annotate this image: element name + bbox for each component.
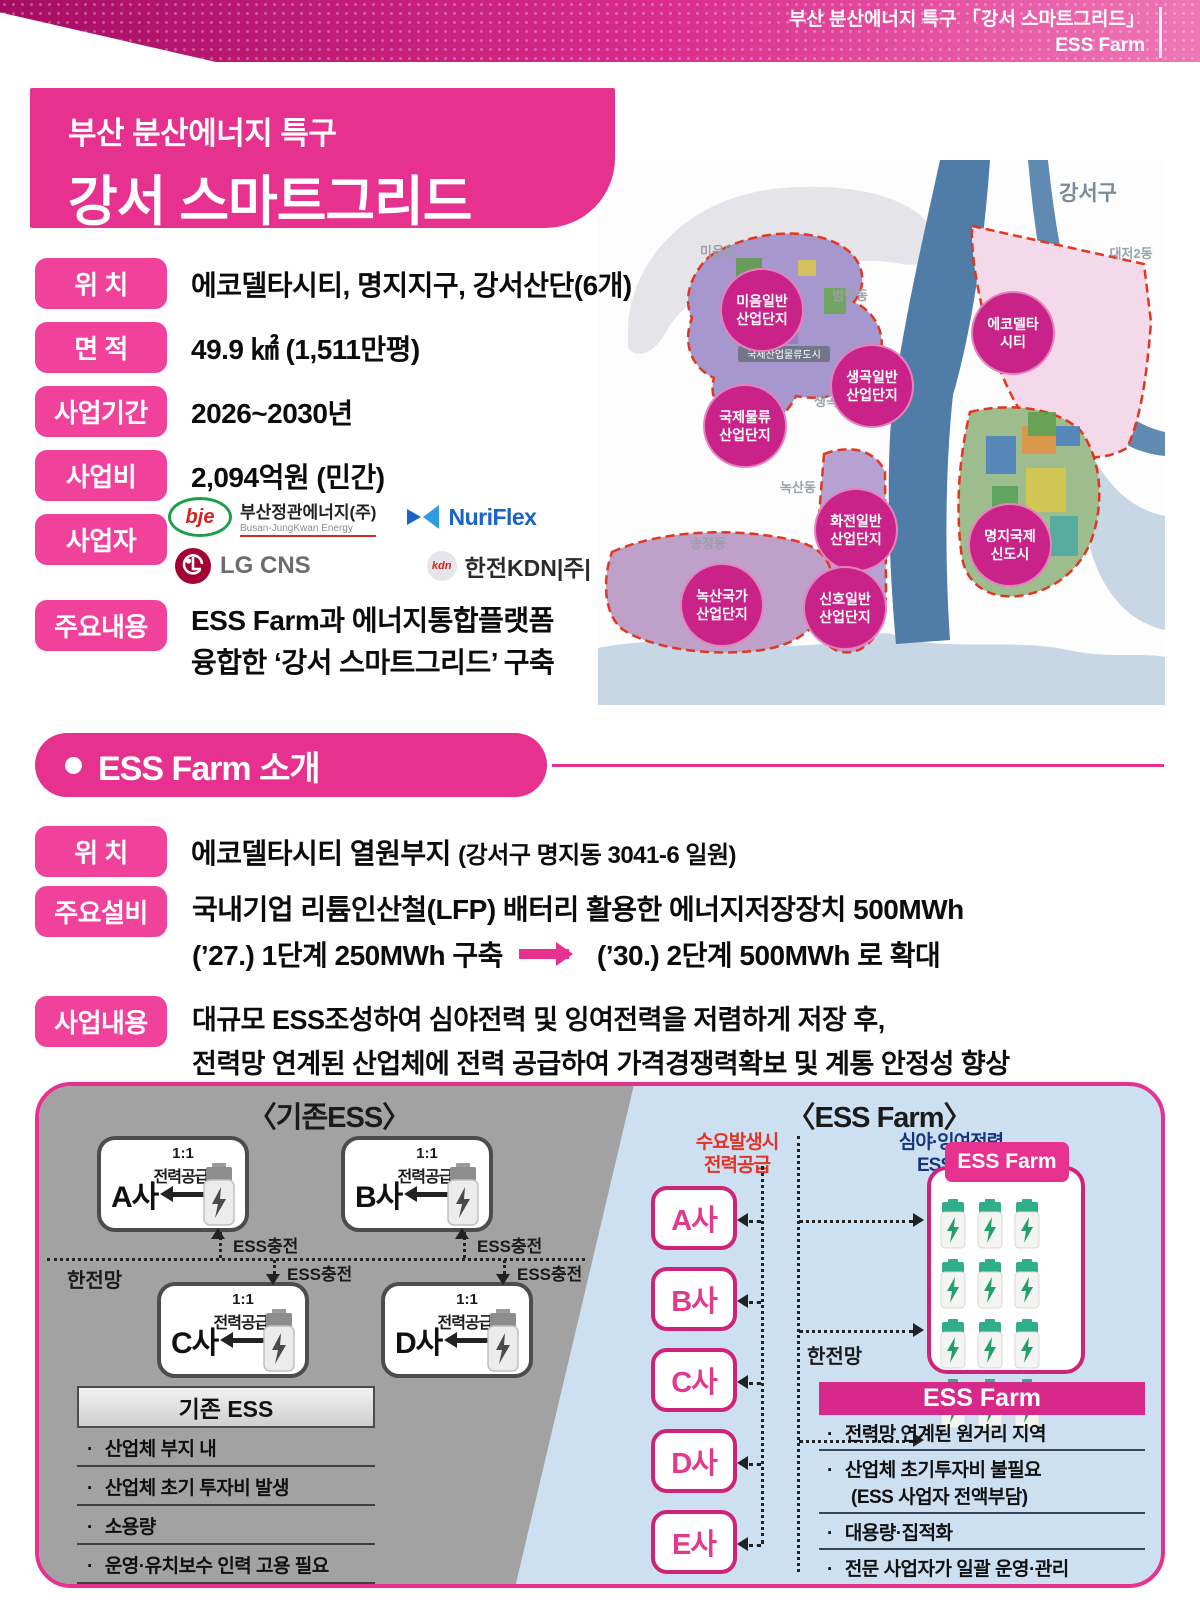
essfarm-table-item: 전문 사업자가 일괄 운영·관리 — [827, 1559, 1069, 1580]
demand-trunk-line — [761, 1166, 764, 1544]
supply-ratio: 1:1 — [395, 1145, 459, 1162]
section-divider-line — [552, 764, 1164, 767]
zone-marker-saenggok: 생곡일반 산업단지 — [831, 345, 913, 427]
company-name: C사 — [171, 1318, 218, 1362]
supply-line — [749, 1544, 761, 1547]
arrow-down-icon — [496, 1274, 510, 1285]
period-value: 2026~2030년 — [191, 392, 353, 432]
svg-text:국제물류: 국제물류 — [719, 409, 771, 425]
supply-ratio: 1:1 — [151, 1145, 215, 1162]
arrow-left-icon — [737, 1294, 748, 1308]
zone-marker-mieum: 미음일반 산업단지 — [721, 269, 803, 351]
battery-icon — [201, 1162, 237, 1228]
area-value: 49.9 ㎢ (1,511만평) — [191, 328, 420, 368]
supply-line — [749, 1382, 761, 1385]
legacy-ess-table: 기존 ESS 산업체 부지 내 산업체 초기 투자비 발생 소용량 운영·유치보… — [77, 1386, 375, 1588]
green-battery-icon — [976, 1258, 1004, 1310]
budget-value: 2,094억원 (민간) — [191, 456, 385, 496]
logo-bje: bje 부산정관에너지(주) Busan-JungKwan Energy — [168, 497, 376, 537]
svg-text:신도시: 신도시 — [991, 546, 1030, 562]
farm-company-box-a: A사 — [651, 1186, 737, 1250]
banner-line1: 부산 분산에너지 특구 「강서 스마트그리드」 — [789, 7, 1145, 33]
town-label: 대저2동 — [1109, 246, 1152, 261]
operator-logos-row1: bje 부산정관에너지(주) Busan-JungKwan Energy Nur… — [168, 497, 591, 537]
essfarm-table-title: ESS Farm — [819, 1382, 1145, 1415]
charge-line — [799, 1220, 913, 1223]
legacy-company-box-a: 1:1 전력공급 A사 — [97, 1136, 249, 1232]
town-label: 송정동 — [690, 536, 726, 551]
svg-text:시티: 시티 — [1000, 334, 1026, 350]
bullet-icon — [65, 757, 82, 774]
period-label: 사업기간 — [35, 386, 167, 437]
demand-line2: 전력공급 — [681, 1155, 793, 1178]
lgcns-name: LG CNS — [220, 552, 311, 580]
info-row-summary: 주요내용 ESS Farm과 에너지통합플랫폼 융합한 ‘강서 스마트그리드’ … — [35, 600, 554, 684]
logo-lgcns: LG CNS — [174, 547, 311, 585]
svg-text:명지국제: 명지국제 — [984, 528, 1036, 544]
poster-root: 부산 분산에너지 특구 「강서 스마트그리드」 ESS Farm 부산 분산에너… — [0, 0, 1200, 1600]
zone-marker-myeongji: 명지국제 신도시 — [969, 504, 1051, 586]
kdn-name: 한전KDN|주| — [465, 549, 591, 583]
title-box: 부산 분산에너지 특구 강서 스마트그리드 — [30, 88, 615, 228]
svg-text:신호일반: 신호일반 — [819, 591, 871, 607]
budget-label: 사업비 — [35, 450, 167, 501]
arrow-down-icon — [266, 1274, 280, 1285]
section-title: ESS Farm 소개 — [98, 741, 320, 790]
legacy-company-box-d: 1:1 전력공급 D사 — [381, 1282, 533, 1378]
farm-battery-bank — [927, 1166, 1085, 1374]
arrow-up-icon — [455, 1228, 469, 1239]
supply-line — [749, 1220, 761, 1223]
town-label: 녹산동 — [780, 480, 816, 495]
demand-supply-label: 수요발생시 전력공급 — [681, 1132, 793, 1178]
svg-text:산업단지: 산업단지 — [846, 387, 898, 403]
facility-line1: 국내기업 리튬인산철(LFP) 배터리 활용한 에너지저장장치 500MWh — [192, 888, 964, 928]
info-row-budget: 사업비 2,094억원 (민간) — [35, 450, 385, 501]
legacy-company-box-c: 1:1 전력공급 C사 — [157, 1282, 309, 1378]
logo-nuriflex: NuriFlex — [406, 504, 536, 531]
top-banner: 부산 분산에너지 특구 「강서 스마트그리드」 ESS Farm — [0, 0, 1200, 62]
legacy-table-item: ESS-산업체 1:1 전력수요 대응 — [77, 1584, 375, 1588]
company-supply-row: C사 — [171, 1318, 267, 1362]
area-label: 면 적 — [35, 322, 167, 373]
essfarm-table-item: 전력망 연계된 원거리 지역 — [827, 1424, 1046, 1445]
arrow-left-icon — [737, 1375, 748, 1389]
supply-ratio: 1:1 — [211, 1291, 275, 1308]
charge-label: ESS충전 — [517, 1260, 582, 1285]
demand-line1: 수요발생시 — [681, 1132, 793, 1155]
green-battery-icon — [1013, 1258, 1041, 1310]
nuriflex-logo-icon — [406, 504, 440, 530]
comparison-diagram-panel: 〈기존ESS〉 1:1 전력공급 A사 1:1 전력공급 B사 — [35, 1082, 1165, 1588]
arrow-right-icon — [913, 1323, 924, 1337]
arrow-left-icon — [737, 1213, 748, 1227]
business-label: 사업내용 — [35, 996, 167, 1047]
supply-line — [749, 1463, 761, 1466]
facility-label: 주요설비 — [35, 886, 167, 937]
company-name: B사 — [355, 1172, 402, 1216]
farm-company-box-d: D사 — [651, 1429, 737, 1493]
location-map: 국제산업물류도시 강서구 미음동 범방동 생곡동 녹산동 송정동 대저2동 미음… — [598, 160, 1165, 705]
battery-icon — [261, 1308, 297, 1374]
operators-label: 사업자 — [35, 514, 167, 565]
summary-line1: ESS Farm과 에너지통합플랫폼 — [191, 605, 554, 636]
company-supply-row: A사 — [111, 1172, 207, 1216]
location-value: 에코델타시티, 명지지구, 강서산단(6개) — [191, 264, 632, 304]
summary-line2: 융합한 ‘강서 스마트그리드’ 구축 — [191, 647, 554, 678]
farm-company-box-e: E사 — [651, 1510, 737, 1574]
battery-icon — [485, 1308, 521, 1374]
page-title: 강서 스마트그리드 — [68, 157, 615, 236]
arrow-right-icon — [913, 1213, 924, 1227]
facility-line2: (’27.) 1단계 250MWh 구축 (’30.) 2단계 500MWh 로… — [192, 934, 940, 974]
essfarm-location-row: 위 치 에코델타시티 열원부지 (강서구 명지동 3041-6 일원) — [35, 826, 736, 877]
essfarm-table: ESS Farm 전력망 연계된 원거리 지역 산업체 초기투자비 불필요 (E… — [819, 1382, 1145, 1588]
legacy-table-title: 기존 ESS — [77, 1386, 375, 1428]
green-battery-icon — [939, 1258, 967, 1310]
grid-label: 한전망 — [67, 1264, 122, 1293]
kdn-logo-icon: kdn — [427, 551, 457, 581]
town-label: 범방동 — [832, 288, 868, 303]
essfarm-location-main: 에코델타시티 열원부지 — [191, 838, 451, 869]
summary-value: ESS Farm과 에너지통합플랫폼 융합한 ‘강서 스마트그리드’ 구축 — [191, 600, 554, 684]
essfarm-location-label: 위 치 — [35, 826, 167, 877]
business-line2: 전력망 연계된 산업체에 전력 공급하여 가격경쟁력확보 및 계통 안정성 향상 — [192, 1042, 1010, 1081]
zone-marker-sinho: 신호일반 산업단지 — [804, 567, 886, 649]
info-row-period: 사업기간 2026~2030년 — [35, 386, 353, 437]
zone-marker-logistics: 국제물류 산업단지 — [704, 385, 786, 467]
zone-marker-hwajeon: 화전일반 산업단지 — [815, 489, 897, 571]
svg-text:산업단지: 산업단지 — [819, 609, 871, 625]
svg-text:산업단지: 산업단지 — [719, 427, 771, 443]
svg-text:산업단지: 산업단지 — [736, 311, 788, 327]
bje-name-kr: 부산정관에너지(주) — [240, 498, 376, 523]
arrow-left-icon — [737, 1537, 748, 1551]
nuriflex-name: NuriFlex — [448, 504, 536, 531]
phase-arrow-icon — [519, 949, 569, 959]
svg-text:산업단지: 산업단지 — [830, 531, 882, 547]
farm-tab-label: ESS Farm — [945, 1142, 1069, 1182]
grid-label: 한전망 — [807, 1340, 862, 1369]
facility-phase2: (’30.) 2단계 500MWh 로 확대 — [597, 934, 940, 974]
svg-text:화전일반: 화전일반 — [830, 513, 882, 529]
zone-marker-ecodelta: 에코델타 시티 — [972, 292, 1054, 374]
company-supply-row: D사 — [395, 1318, 491, 1362]
company-supply-row: B사 — [355, 1172, 451, 1216]
farm-company-box-c: C사 — [651, 1348, 737, 1412]
business-line1: 대규모 ESS조성하여 심야전력 및 잉여전력을 저렴하게 저장 후, — [192, 998, 885, 1037]
legacy-table-item: 산업체 초기 투자비 발생 — [77, 1467, 375, 1506]
zone-marker-noksan: 녹산국가 산업단지 — [681, 564, 763, 646]
operator-logos-row2: LG CNS kdn 한전KDN|주| — [174, 547, 591, 585]
green-battery-icon — [976, 1198, 1004, 1250]
essfarm-table-item: 대용량·집적화 — [827, 1523, 953, 1544]
legacy-ess-title: 〈기존ESS〉 — [209, 1094, 449, 1136]
legacy-table-item: 산업체 부지 내 — [77, 1428, 375, 1467]
location-label: 위 치 — [35, 258, 167, 309]
legacy-table-item: 소용량 — [77, 1506, 375, 1545]
essfarm-location-paren: (강서구 명지동 3041-6 일원) — [458, 842, 736, 869]
town-label: 미음동 — [700, 244, 736, 259]
green-battery-icon — [939, 1318, 967, 1370]
map-canvas: 국제산업물류도시 강서구 미음동 범방동 생곡동 녹산동 송정동 대저2동 미음… — [598, 160, 1165, 705]
info-row-operators: 사업자 — [35, 514, 167, 565]
supply-line — [749, 1301, 761, 1304]
legacy-company-box-b: 1:1 전력공급 B사 — [341, 1136, 493, 1232]
essfarm-table-item-line1: 산업체 초기투자비 불필요 — [827, 1455, 1143, 1482]
banner-line2: ESS Farm — [789, 33, 1145, 59]
lg-logo-icon — [174, 547, 212, 585]
operator-logos: bje 부산정관에너지(주) Busan-JungKwan Energy Nur… — [168, 497, 591, 585]
bje-logo-icon: bje — [168, 497, 232, 537]
company-name: A사 — [111, 1172, 158, 1216]
bje-name-en: Busan-JungKwan Energy — [240, 523, 376, 537]
green-battery-icon — [1013, 1198, 1041, 1250]
bje-names: 부산정관에너지(주) Busan-JungKwan Energy — [240, 498, 376, 537]
charge-line — [799, 1330, 913, 1333]
summary-label: 주요내용 — [35, 600, 167, 651]
district-label: 강서구 — [1059, 182, 1117, 205]
svg-text:생곡일반: 생곡일반 — [846, 369, 898, 385]
svg-text:미음일반: 미음일반 — [736, 293, 788, 309]
company-name: D사 — [395, 1318, 442, 1362]
svg-text:산업단지: 산업단지 — [696, 606, 748, 622]
legacy-table-item: 운영·유치보수 인력 고용 필요 — [77, 1545, 375, 1584]
section-header-essfarm: ESS Farm 소개 — [35, 733, 547, 797]
green-battery-icon — [976, 1318, 1004, 1370]
arrow-up-icon — [211, 1228, 225, 1239]
title-subtitle: 부산 분산에너지 특구 — [68, 108, 615, 153]
arrow-left-icon — [737, 1456, 748, 1470]
charge-label: ESS충전 — [477, 1232, 542, 1257]
essfarm-location-value: 에코델타시티 열원부지 (강서구 명지동 3041-6 일원) — [191, 832, 736, 872]
info-row-area: 면 적 49.9 ㎢ (1,511만평) — [35, 322, 420, 373]
logo-kdn: kdn 한전KDN|주| — [427, 549, 591, 583]
info-row-location: 위 치 에코델타시티, 명지지구, 강서산단(6개) — [35, 258, 632, 309]
charge-label: ESS충전 — [287, 1260, 352, 1285]
essfarm-table-item: 산업체 초기투자비 불필요 (ESS 사업자 전액부담) — [819, 1451, 1145, 1514]
farm-company-box-b: B사 — [651, 1267, 737, 1331]
green-battery-icon — [939, 1198, 967, 1250]
grid-trunk-line — [797, 1136, 800, 1572]
banner-text: 부산 분산에너지 특구 「강서 스마트그리드」 ESS Farm — [789, 7, 1162, 58]
green-battery-icon — [1013, 1318, 1041, 1370]
supply-ratio: 1:1 — [435, 1291, 499, 1308]
facility-phase1: (’27.) 1단계 250MWh 구축 — [192, 934, 503, 974]
svg-text:에코델타: 에코델타 — [987, 316, 1039, 332]
svg-text:녹산국가: 녹산국가 — [696, 588, 748, 604]
essfarm-title: 〈ESS Farm〉 — [759, 1094, 999, 1136]
charge-label: ESS충전 — [233, 1232, 298, 1257]
essfarm-table-item-line2: (ESS 사업자 전액부담) — [827, 1482, 1143, 1509]
battery-icon — [445, 1162, 481, 1228]
